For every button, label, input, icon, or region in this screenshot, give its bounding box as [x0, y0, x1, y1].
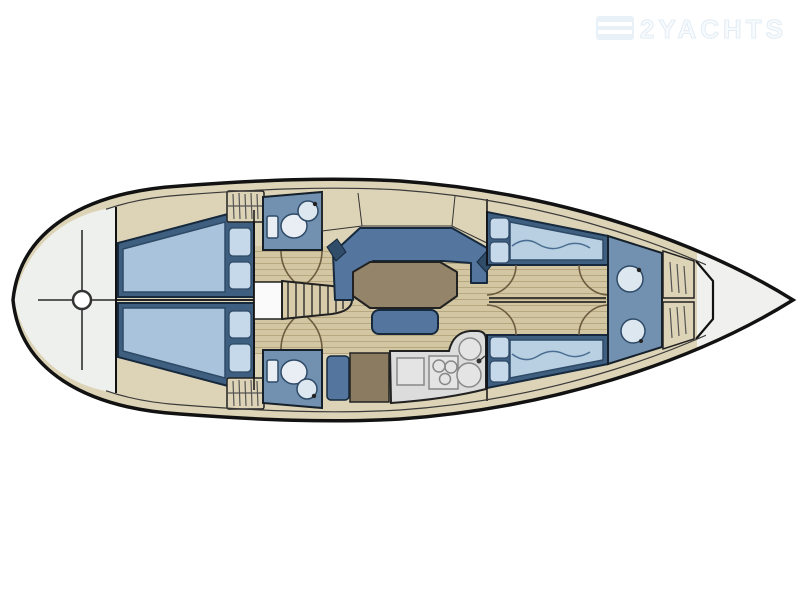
pillow	[229, 344, 251, 372]
pillow	[229, 262, 251, 289]
stove-icon	[429, 356, 458, 389]
nav-seat	[327, 356, 349, 400]
salon-table	[353, 262, 457, 308]
tap-icon	[637, 268, 641, 272]
flag-stripes-icon	[596, 16, 634, 40]
pillow	[490, 242, 509, 263]
companionway-landing	[254, 282, 282, 319]
tap-icon	[313, 202, 317, 206]
watermark: 2YACHTS	[596, 14, 787, 44]
toilet-tank-icon	[267, 216, 278, 238]
bow-tip-area	[697, 253, 790, 347]
head-top	[263, 192, 322, 250]
head-bottom	[263, 350, 322, 408]
yacht-floor-plan-page: { "watermark": { "brand": "2YACHTS", "ic…	[0, 0, 800, 600]
watermark-text: 2YACHTS	[640, 14, 787, 44]
hanging-locker-aft-top	[227, 191, 264, 222]
pillow	[229, 228, 251, 256]
settee-bench	[372, 310, 438, 334]
fridge-icon	[397, 358, 424, 385]
pillow	[490, 337, 509, 358]
pillow	[229, 311, 251, 338]
pillow	[490, 218, 509, 239]
helm-wheel-icon	[73, 291, 91, 309]
hanging-locker-aft-bottom	[227, 378, 264, 409]
nav-station	[327, 353, 389, 402]
bow-head	[608, 236, 662, 364]
floor-plan-canvas: 2YACHTS	[0, 0, 800, 600]
pillow	[490, 361, 509, 382]
toilet-tank-icon	[267, 360, 278, 382]
chart-table	[350, 353, 389, 402]
tap-icon	[312, 394, 316, 398]
flush-icon	[639, 339, 643, 343]
